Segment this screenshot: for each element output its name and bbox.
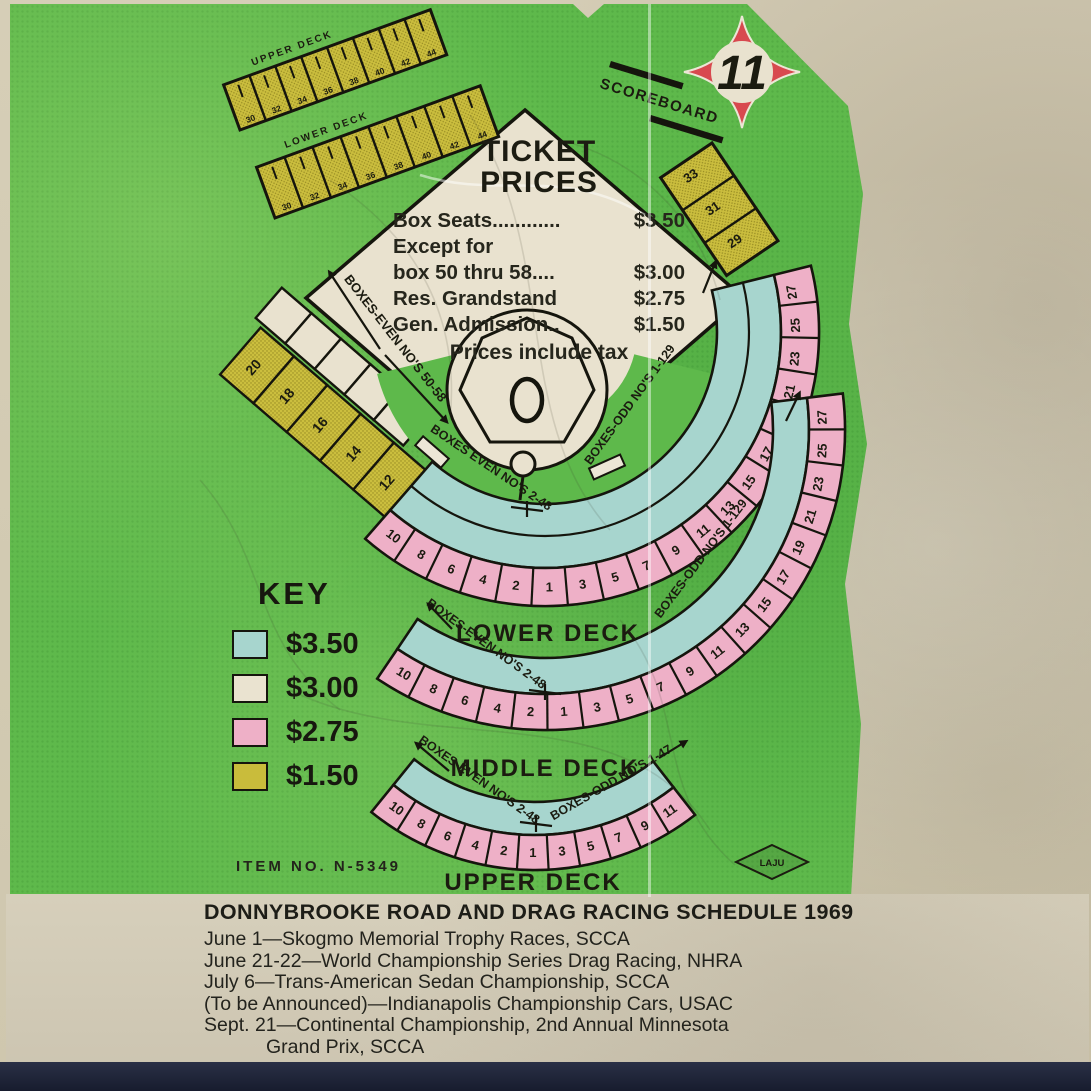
section-number: 1 xyxy=(560,704,568,719)
section-number: 27 xyxy=(814,410,830,425)
ticket-title-line2: PRICES xyxy=(393,167,685,198)
deck-caption: UPPER DECK xyxy=(444,869,621,896)
item-number: ITEM NO. N-5349 xyxy=(236,858,401,875)
price-label: Gen. Admission.. xyxy=(393,312,560,338)
key-color-swatch xyxy=(232,674,268,703)
price-label: Except for xyxy=(393,234,493,260)
key-entry: $1.50 xyxy=(232,760,359,793)
schedule-line: July 6—Trans-American Sedan Championship… xyxy=(204,972,1088,994)
schedule-line: June 1—Skogmo Memorial Trophy Races, SCC… xyxy=(204,929,1088,951)
schedule-title: DONNYBROOKE ROAD AND DRAG RACING SCHEDUL… xyxy=(204,900,1088,925)
price-row: Box Seats............$3.50 xyxy=(393,208,685,234)
schedule-panel: DONNYBROOKE ROAD AND DRAG RACING SCHEDUL… xyxy=(204,900,1088,1058)
ticket-title-line1: TICKET xyxy=(393,136,685,167)
price-row: box 50 thru 58....$3.00 xyxy=(393,260,685,286)
scanned-card: 20181614123032343638404244UPPER DECK3032… xyxy=(0,0,1091,1091)
key-color-swatch xyxy=(232,630,268,659)
key-color-swatch xyxy=(232,718,268,747)
schedule-lines: June 1—Skogmo Memorial Trophy Races, SCC… xyxy=(204,929,1088,1058)
key-entry: $2.75 xyxy=(232,716,359,749)
price-row: Gen. Admission..$1.50 xyxy=(393,312,685,338)
ticket-price-rows: Box Seats............$3.50Except forbox … xyxy=(393,208,685,338)
key-price: $3.50 xyxy=(286,628,359,661)
union-label: LAJU xyxy=(760,858,785,869)
schedule-line: June 21-22—World Championship Series Dra… xyxy=(204,951,1088,973)
price-value: $1.50 xyxy=(634,312,685,338)
key-price: $1.50 xyxy=(286,760,359,793)
price-row: Res. Grandstand$2.75 xyxy=(393,286,685,312)
section-number: 23 xyxy=(786,351,802,367)
price-label: Res. Grandstand xyxy=(393,286,557,312)
price-label: Box Seats............ xyxy=(393,208,560,234)
key-entry: $3.00 xyxy=(232,672,359,705)
schedule-line: (To be Announced)—Indianapolis Champions… xyxy=(204,994,1088,1016)
home-plate-circle xyxy=(511,452,535,476)
price-value: $3.00 xyxy=(634,260,685,286)
section-number: 1 xyxy=(529,845,536,860)
price-value: $3.50 xyxy=(634,208,685,234)
key-entry: $3.50 xyxy=(232,628,359,661)
section-number: 23 xyxy=(809,475,826,492)
key-price: $2.75 xyxy=(286,716,359,749)
price-key-panel: KEY $3.50$3.00$2.75$1.50 xyxy=(232,576,359,804)
ticket-prices-panel: TICKET PRICES Box Seats............$3.50… xyxy=(393,136,685,365)
page-number: 11 xyxy=(717,47,767,100)
ticket-footnote: Prices include tax xyxy=(393,341,685,365)
key-color-swatch xyxy=(232,762,268,791)
key-title: KEY xyxy=(258,576,359,612)
section-number: 27 xyxy=(783,284,800,301)
fold-line xyxy=(648,4,651,897)
schedule-line: Sept. 21—Continental Championship, 2nd A… xyxy=(204,1015,1088,1037)
key-rows: $3.50$3.00$2.75$1.50 xyxy=(232,628,359,793)
price-value: $2.75 xyxy=(634,286,685,312)
price-label: box 50 thru 58.... xyxy=(393,260,555,286)
price-row: Except for xyxy=(393,234,685,260)
section-number: 25 xyxy=(787,318,803,333)
key-price: $3.00 xyxy=(286,672,359,705)
section-number: 1 xyxy=(546,579,553,594)
section-number: 2 xyxy=(527,704,535,719)
section-number: 25 xyxy=(814,443,830,458)
schedule-line: Grand Prix, SCCA xyxy=(204,1037,1088,1059)
